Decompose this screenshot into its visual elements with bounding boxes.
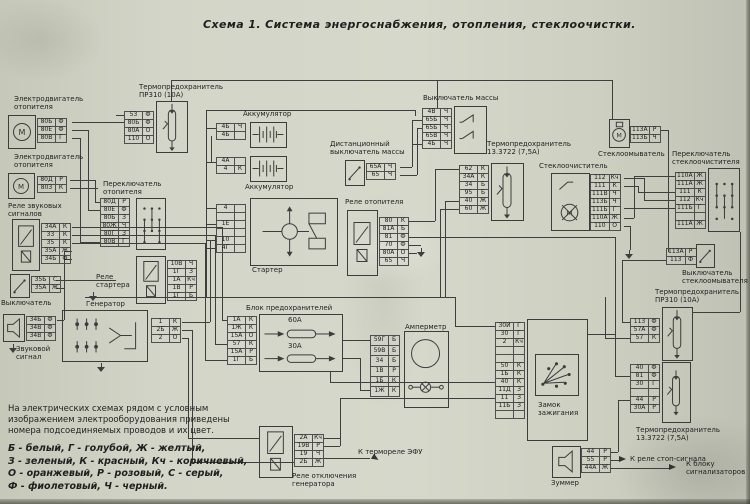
pin-number: 30А <box>631 405 649 413</box>
pin-number: 1Г <box>228 357 246 365</box>
battery-2-pins: 4А4К <box>216 157 246 174</box>
relay-icon <box>347 210 378 276</box>
pin-color: Ф <box>60 256 71 264</box>
wire <box>343 358 360 359</box>
horn-relay-pins: 34АК33К35К35АЖ34БФ <box>41 223 71 264</box>
pin-color: О <box>170 335 181 343</box>
pin-number: 59В <box>371 346 389 356</box>
knife-switch-icon <box>454 106 487 154</box>
relay-icon <box>136 256 166 304</box>
wire <box>615 237 616 376</box>
pin-number: 110 <box>591 223 610 231</box>
wire <box>634 176 635 218</box>
thermal-fuse-bottom-pins: 40Ф81Ф30Г44Р30АР <box>630 364 660 413</box>
motor-icon: М <box>8 115 36 149</box>
gen-relay-pins: 2АКч19ВР19Ч2БЖ <box>294 434 324 467</box>
pin-color: Б <box>389 346 400 356</box>
pin-color: К <box>649 335 660 343</box>
wire <box>206 248 216 249</box>
wiper-switch-label: Переключатель стеклоочистителя <box>672 151 740 166</box>
pin-color: Р <box>389 366 400 376</box>
pin-number: 65 <box>367 172 385 180</box>
wire <box>182 322 210 323</box>
selector-switch-icon <box>708 168 740 232</box>
wire <box>205 360 227 361</box>
efu-annotation: К термореле ЭФУ <box>358 449 423 457</box>
pin-color: О <box>143 136 154 144</box>
wiper-switch-pins: 110АЖ111АЖ111К112Кч111БГ111АЖ <box>675 172 706 229</box>
ignition-contacts-icon <box>535 354 579 396</box>
wire <box>661 130 668 131</box>
fuse-rating-30a: 30А <box>288 343 302 351</box>
heater-motor-1-pins: 80БФ80ЕФ80ВГ <box>37 118 67 143</box>
heater-switch-label: Переключатель отопителя <box>103 181 161 196</box>
ammeter-pins: 59ГБ59ВБ34Б1ВР1БК1ЖК <box>370 335 400 397</box>
pin-number: 80З <box>38 185 56 193</box>
wire <box>611 460 619 461</box>
wire <box>445 201 446 297</box>
pin-color: Ж <box>694 221 705 229</box>
pin-color: Ж <box>600 465 611 473</box>
pin-number: 1В <box>371 366 389 376</box>
switch-icon <box>345 160 365 186</box>
heater-relay-label: Реле отопителя <box>345 199 403 207</box>
schematic-page: Схема 1. Система энергоснабжения, отопле… <box>0 0 750 504</box>
pin-color: Ж <box>50 285 61 293</box>
pin-number: 111А <box>676 221 695 229</box>
gen-relay-label: Реле отключения генератора <box>292 473 356 488</box>
wiper-label: Стеклоочиститель <box>539 163 608 171</box>
wire <box>605 338 630 339</box>
starter-label: Стартер <box>252 267 283 275</box>
wire <box>440 209 459 210</box>
ground-switch-label: Выключатель массы <box>423 95 498 103</box>
starter-icon <box>250 198 338 266</box>
wire <box>400 175 417 176</box>
wire <box>644 200 675 201</box>
wire <box>324 438 340 439</box>
washer-motor-icon: М <box>609 119 630 148</box>
pin-color: К <box>389 376 400 386</box>
signal-block-annotation: К блоку сигнализаторов <box>686 461 745 476</box>
horn-relay-label: Реле звуковых сигналов <box>8 203 62 218</box>
pin-color <box>235 205 246 213</box>
wire <box>588 334 615 335</box>
pin-color: Б <box>389 356 400 366</box>
pin-color: З <box>514 403 525 411</box>
pin-number: 110 <box>125 136 143 144</box>
pin-color: Ж <box>478 206 489 214</box>
pin-color: О <box>609 223 620 231</box>
pin-color: Кч <box>514 339 525 347</box>
wire <box>206 110 207 297</box>
pin-color <box>235 237 246 245</box>
page-edge <box>746 0 750 504</box>
wire <box>693 312 740 313</box>
wire <box>622 260 623 322</box>
wire <box>440 209 441 297</box>
thermal-fuse-icon <box>662 307 693 361</box>
starter-relay-label: Реле стартера <box>96 274 130 289</box>
pin-color <box>235 213 246 221</box>
wire <box>343 340 370 341</box>
horn-label: Звуковой сигнал <box>16 346 50 361</box>
thermal-fuse-icon <box>662 362 691 423</box>
pin-number: 1Ж <box>371 386 389 396</box>
pin-color: К <box>56 185 67 193</box>
wire <box>400 167 412 168</box>
wire <box>206 224 216 225</box>
wire <box>624 218 634 219</box>
wire <box>605 297 606 338</box>
wire <box>88 210 100 211</box>
pin-number <box>496 411 514 419</box>
wire <box>88 130 89 210</box>
wire <box>624 186 638 187</box>
wire <box>324 458 370 459</box>
pin-number: 30 <box>631 381 649 389</box>
relay-icon <box>259 426 293 478</box>
thermal-fuse-right-label: Термопредохранитель ПР310 (10А) <box>655 289 739 304</box>
pin-number: 111Б <box>676 205 695 213</box>
wire <box>210 240 211 322</box>
wire <box>612 80 613 120</box>
wire <box>644 178 645 200</box>
wire <box>188 438 259 439</box>
pin-number: 80В <box>101 239 119 247</box>
selector-switch-icon <box>136 198 166 250</box>
wire <box>409 245 421 246</box>
motor-icon: М <box>8 173 35 199</box>
wire <box>211 136 212 162</box>
pin-number: 34 <box>371 356 389 366</box>
pin-number: 113Б <box>631 135 650 143</box>
wire <box>340 398 341 446</box>
thermal-fuse-icon <box>156 101 188 153</box>
wire <box>206 128 216 129</box>
pin-number: 4 <box>217 205 235 213</box>
heater-motor-2-label: Электродвигатель отопителя <box>14 154 83 169</box>
wire <box>435 169 459 170</box>
fuse-block-label: Блок предохранителей <box>246 305 332 313</box>
pin-number: 34В <box>27 333 45 341</box>
pin-color: Ч <box>441 141 452 149</box>
battery-1-pins: 4БЧ4Б <box>216 123 246 140</box>
pin-number: 1Е <box>217 221 235 229</box>
horn-icon <box>3 314 25 342</box>
starter-pins: 41Е104Г <box>216 204 246 253</box>
horn-switch-label: Выключатель <box>1 300 51 308</box>
pin-number: 57 <box>631 335 649 343</box>
pin-number <box>496 347 514 355</box>
wiper-pins: 112Кч111К111ВЧ113БЧ111БГ110АЖ110О <box>590 174 621 231</box>
heater-relay-pins: 80К81АБ81Ф70Ф80АО65Ч <box>379 217 409 266</box>
pin-color: Ч <box>398 258 409 266</box>
color-legend: Б - белый, Г - голубой, Ж - желтый, З - … <box>8 443 247 493</box>
pin-number: 44А <box>582 465 600 473</box>
wire <box>70 188 98 189</box>
wire <box>611 452 618 453</box>
pin-number: 113 <box>667 257 686 265</box>
ignition-label: Замок зажигания <box>538 402 578 417</box>
heater-switch-pins: 80ДР80ЕФ80БЗ80ЖЧ80ГЗ80ВГ <box>100 198 130 247</box>
ignition-pins: 30ИГ30Г2Кч50К1БК40К11ДЗ11З11БЗ <box>495 322 525 419</box>
fuse-rating-60a: 60А <box>288 317 302 325</box>
pin-color: Г <box>56 135 67 143</box>
wire <box>360 390 370 391</box>
wire <box>206 162 216 163</box>
ground-switch-pins: 4ВЧ65БЧ65БЧ65ВЧ4БЧ <box>422 108 452 149</box>
generator-label: Генератор <box>86 301 125 309</box>
remote-ground-switch-pins: 65АЧ65Ч <box>366 163 396 180</box>
thermal-fuse-right-pins: 113Ф57АФ57К <box>630 318 660 343</box>
battery-2-label: Аккумулятор <box>245 184 293 192</box>
wire <box>611 468 669 469</box>
wire <box>360 358 361 390</box>
buzzer-label: Зуммер <box>551 480 579 488</box>
wire <box>638 192 675 193</box>
pin-color <box>235 132 246 140</box>
wire <box>171 80 612 81</box>
buzzer-pins: 44Р55Р44АЖ <box>581 448 611 473</box>
remote-ground-switch-label: Дистанционный выключатель массы <box>330 141 405 156</box>
pin-color: Г <box>119 239 130 247</box>
thermal-fuse-bottom-label: Термопредохранитель 13.3722 (7,5А) <box>636 427 720 442</box>
wire <box>206 240 216 241</box>
pin-color: Ч <box>235 124 246 132</box>
page-edge <box>0 499 750 504</box>
pin-color: Б <box>186 293 197 301</box>
wire <box>116 115 124 116</box>
pin-color <box>514 347 525 355</box>
pin-number: 59Г <box>371 336 389 346</box>
wire <box>206 208 216 209</box>
wire <box>72 138 80 139</box>
svg-text:М: М <box>19 128 26 137</box>
pin-color: Ф <box>685 257 696 265</box>
wire <box>182 330 192 331</box>
pin-color: Р <box>649 405 660 413</box>
wire <box>95 180 96 202</box>
wire <box>72 122 124 123</box>
wire-color-note: На электрических схемах рядом с условным… <box>8 404 260 437</box>
thermal-fuse-icon <box>491 163 524 221</box>
pin-number: 4Б <box>217 132 235 140</box>
pin-color: Ж <box>313 459 324 467</box>
thermal-fuse-mid-pins: 62К34АК34Б95Б40Ж60Ж <box>459 165 489 214</box>
wire <box>622 260 666 261</box>
pin-number: 65 <box>380 258 398 266</box>
pin-number: 80В <box>38 135 56 143</box>
buzzer-icon <box>552 446 581 478</box>
pin-color: К <box>389 386 400 396</box>
wire <box>215 344 227 345</box>
wire <box>330 372 331 382</box>
relay-icon <box>12 219 40 271</box>
pin-color: Ф <box>45 333 56 341</box>
pin-color: Ч <box>649 135 660 143</box>
pin-color <box>235 229 246 237</box>
ammeter-icon <box>404 331 449 408</box>
pin-color: Г <box>694 205 705 213</box>
pin-number: 4Б <box>423 141 441 149</box>
ground-icon <box>624 250 634 259</box>
starter-relay-pins: 10ВЧ1ГЗ1АКч1ВР1ГБ <box>167 260 197 301</box>
pin-number: 1Б <box>371 376 389 386</box>
pin-number: 4 <box>217 166 235 174</box>
thermal-fuse-top-pins: 53Ф80БФ80АО110О <box>124 111 154 144</box>
wire <box>622 322 630 323</box>
thermal-fuse-top-label: Термопредохранитель ПР310 (10А) <box>139 84 223 99</box>
pin-number: 2 <box>496 339 514 347</box>
wire <box>324 446 340 447</box>
wire <box>668 130 669 252</box>
wire <box>445 201 459 202</box>
pin-number: 4Г <box>217 245 235 253</box>
heater-motor-1-label: Электродвигатель отопителя <box>14 96 83 111</box>
wire <box>630 226 631 250</box>
washer-pins: 113АР113БЧ <box>630 126 661 143</box>
pin-number: 2 <box>152 335 170 343</box>
wire <box>618 400 630 401</box>
pin-number: 35А <box>32 285 50 293</box>
wire <box>409 221 435 222</box>
horn-switch-pins: 35БС35АЖ <box>31 276 61 293</box>
pin-color: Г <box>649 381 660 389</box>
pin-number: 1Г <box>168 293 186 301</box>
fuse-block-pins: 1АК1ЖК15АО57К15АР1ГБ <box>227 316 257 365</box>
svg-text:М: М <box>18 183 24 191</box>
wire <box>412 120 422 121</box>
pin-color: Б <box>246 357 257 365</box>
ground-icon <box>96 363 106 372</box>
generator-pins: 1К2БЖ2О <box>151 318 181 343</box>
svg-text:М: М <box>616 133 621 140</box>
horn-pins: 34БФ34ВФ34ВФ <box>26 316 56 341</box>
arrow-icon <box>619 456 626 462</box>
pin-number: 34Б <box>42 256 60 264</box>
wire <box>455 297 456 326</box>
arrow-icon <box>669 464 676 470</box>
wire <box>206 110 415 111</box>
wire <box>415 110 416 116</box>
wire <box>435 169 436 221</box>
washer-switch-pins: 113АР113Ф <box>666 248 697 265</box>
pin-color: К <box>235 166 246 174</box>
pin-color: Ч <box>385 172 396 180</box>
wire <box>615 376 630 377</box>
pin-number: 11Б <box>496 403 514 411</box>
heater-motor-2-pins: 80ДР80ЗК <box>37 176 67 193</box>
pin-number: 60 <box>460 206 478 214</box>
battery-icon <box>250 122 287 148</box>
wiper-motor-icon: М <box>551 173 590 231</box>
pin-color <box>235 245 246 253</box>
wire <box>455 326 495 327</box>
pin-color: Б <box>389 336 400 346</box>
switch-icon <box>10 274 30 298</box>
ground-icon <box>416 248 426 257</box>
pin-color <box>235 221 246 229</box>
wire <box>417 128 418 175</box>
pin-color <box>514 411 525 419</box>
battery-1-label: Аккумулятор <box>243 111 291 119</box>
thermal-fuse-mid-label: Термопредохранитель 13.3722 (7,5А) <box>487 141 571 156</box>
washer-switch-label: Выключатель стеклоомывателя <box>682 270 748 285</box>
wire <box>70 180 95 181</box>
switch-icon <box>696 244 715 268</box>
wire <box>72 130 88 131</box>
battery-icon <box>250 156 287 182</box>
washer-label: Стеклоомыватель <box>598 151 665 159</box>
page-title: Схема 1. Система энергоснабжения, отопле… <box>203 18 636 31</box>
wire <box>618 400 619 452</box>
pin-number: 2Б <box>295 459 313 467</box>
generator-icon <box>62 310 148 362</box>
